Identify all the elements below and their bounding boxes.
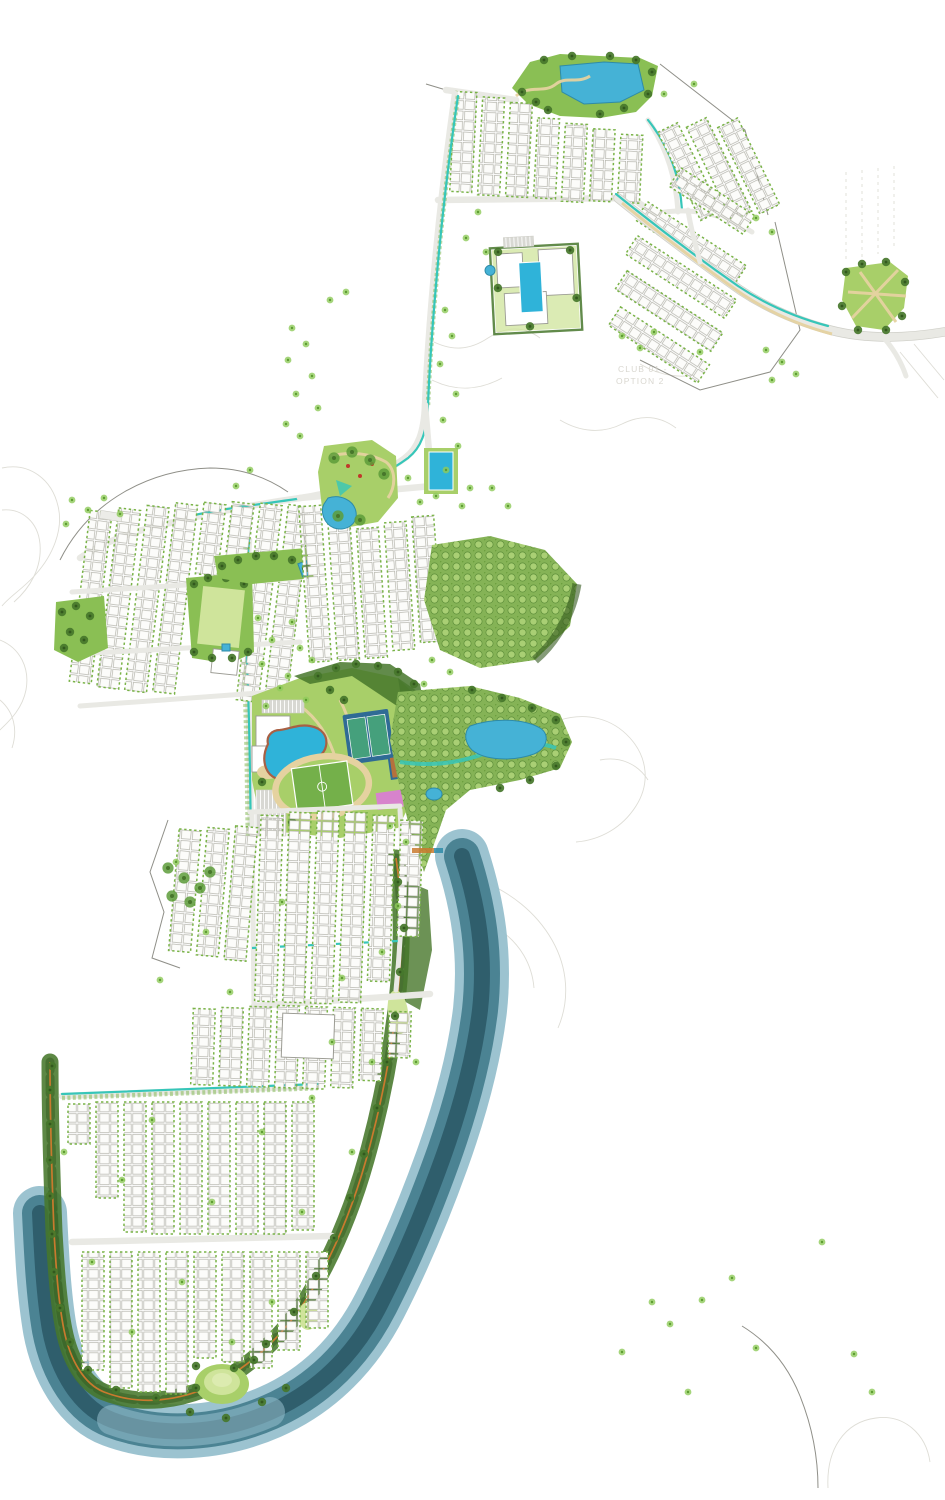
south-upper-west-blocks: [168, 821, 257, 961]
west-park-lawn: [197, 586, 245, 648]
lot-block: [255, 815, 283, 1002]
lot-block: [82, 1252, 104, 1370]
club01-parking: [503, 236, 533, 248]
lot-block: [222, 1252, 244, 1362]
lot-block: [388, 1011, 412, 1058]
lot-block: [299, 505, 332, 662]
lot-block: [506, 102, 533, 197]
lot-block: [110, 1252, 132, 1388]
lawn-mound-top: [212, 1373, 232, 1387]
lot-block: [152, 1102, 174, 1234]
lot-block: [247, 1006, 272, 1087]
community-site-block: [281, 1013, 335, 1059]
central-hill-woodland: [424, 536, 577, 668]
lot-block: [311, 811, 340, 1004]
section-marker-blue: [434, 848, 443, 853]
south-cross-road-3: [72, 1236, 332, 1242]
club01-plunge-pool: [485, 265, 496, 276]
lot-block: [278, 1252, 300, 1350]
play-equipment: [358, 474, 362, 478]
lot-block: [384, 521, 415, 650]
hill-park-spur-road: [884, 338, 906, 376]
club01-lap-pool: [519, 262, 544, 313]
lot-block: [283, 812, 312, 1003]
lot-block: [478, 97, 505, 196]
masterplan-drawing: CLUB 01 - OPTION 2: [0, 0, 945, 1500]
orchard-pond-small: [426, 788, 442, 800]
club01-building-east: [538, 248, 574, 296]
lot-block: [68, 1104, 90, 1144]
east-hill-park: [838, 258, 909, 376]
lot-block: [617, 134, 643, 203]
lot-block: [339, 812, 368, 1003]
lot-block: [367, 815, 395, 982]
lot-block: [250, 1252, 272, 1368]
community-lap-pool: [429, 452, 453, 490]
hill-woodland-canopy: [424, 536, 577, 668]
neighborhood-park: [318, 440, 458, 529]
masterplan-canvas: CLUB 01 - OPTION 2: [0, 0, 945, 1500]
play-equipment: [346, 464, 350, 468]
lot-block: [236, 1102, 258, 1234]
lot-block: [356, 527, 387, 658]
club-area-label-line1: CLUB 01 -: [618, 364, 668, 374]
lot-block: [166, 1252, 188, 1394]
club-area-label-line2: OPTION 2: [616, 376, 664, 386]
section-marker-orange: [412, 848, 434, 853]
lot-block: [306, 1252, 328, 1328]
lot-block: [359, 1008, 383, 1081]
lot-block: [533, 118, 559, 199]
lot-block: [124, 1102, 146, 1232]
west-park-pavilion: [211, 649, 239, 676]
orchard-pond: [466, 720, 547, 759]
clubhouse-01-complex: [483, 234, 582, 335]
lot-block: [208, 1102, 230, 1234]
lot-block: [219, 1007, 244, 1086]
lot-block: [194, 1252, 216, 1358]
lot-block: [96, 1102, 118, 1198]
lot-block: [138, 1252, 160, 1392]
south-lower-blocks: [68, 1102, 314, 1234]
lot-block: [191, 1008, 216, 1085]
lot-block: [180, 1102, 202, 1234]
north-neighborhood: [438, 54, 658, 214]
lot-block: [589, 129, 615, 202]
west-park-plunge: [222, 644, 230, 651]
lot-block: [264, 1102, 286, 1234]
lot-block: [397, 820, 423, 937]
lot-block: [561, 123, 587, 202]
